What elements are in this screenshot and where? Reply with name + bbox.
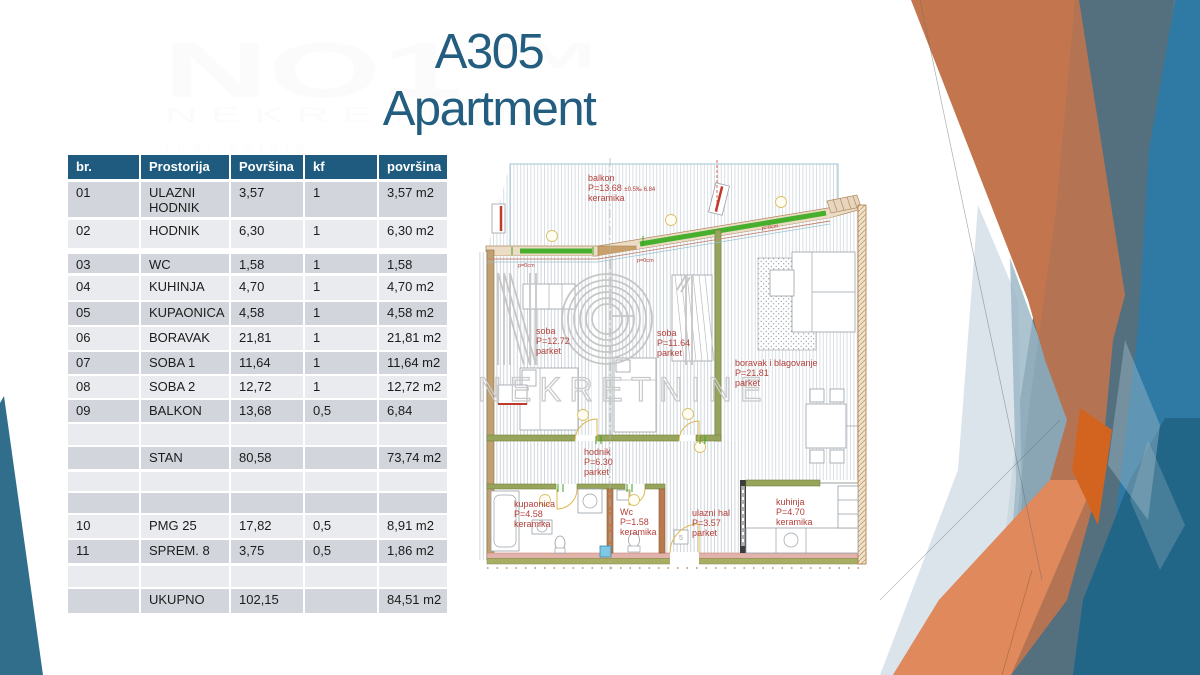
svg-text:NEKRETNINE: NEKRETNINE [478,371,770,409]
svg-text:hodnikP=6.30parket: hodnikP=6.30parket [584,447,613,477]
svg-text:5: 5 [679,535,683,542]
svg-text:p=0cm: p=0cm [518,263,535,269]
svg-text:kupaonicaP=4.58keramika: kupaonicaP=4.58keramika [514,499,555,529]
svg-text:kuhinjaP=4.70keramika: kuhinjaP=4.70keramika [776,497,813,527]
svg-text:p=0cm: p=0cm [637,258,654,264]
svg-text:WcP=1.58keramika: WcP=1.58keramika [620,507,657,537]
